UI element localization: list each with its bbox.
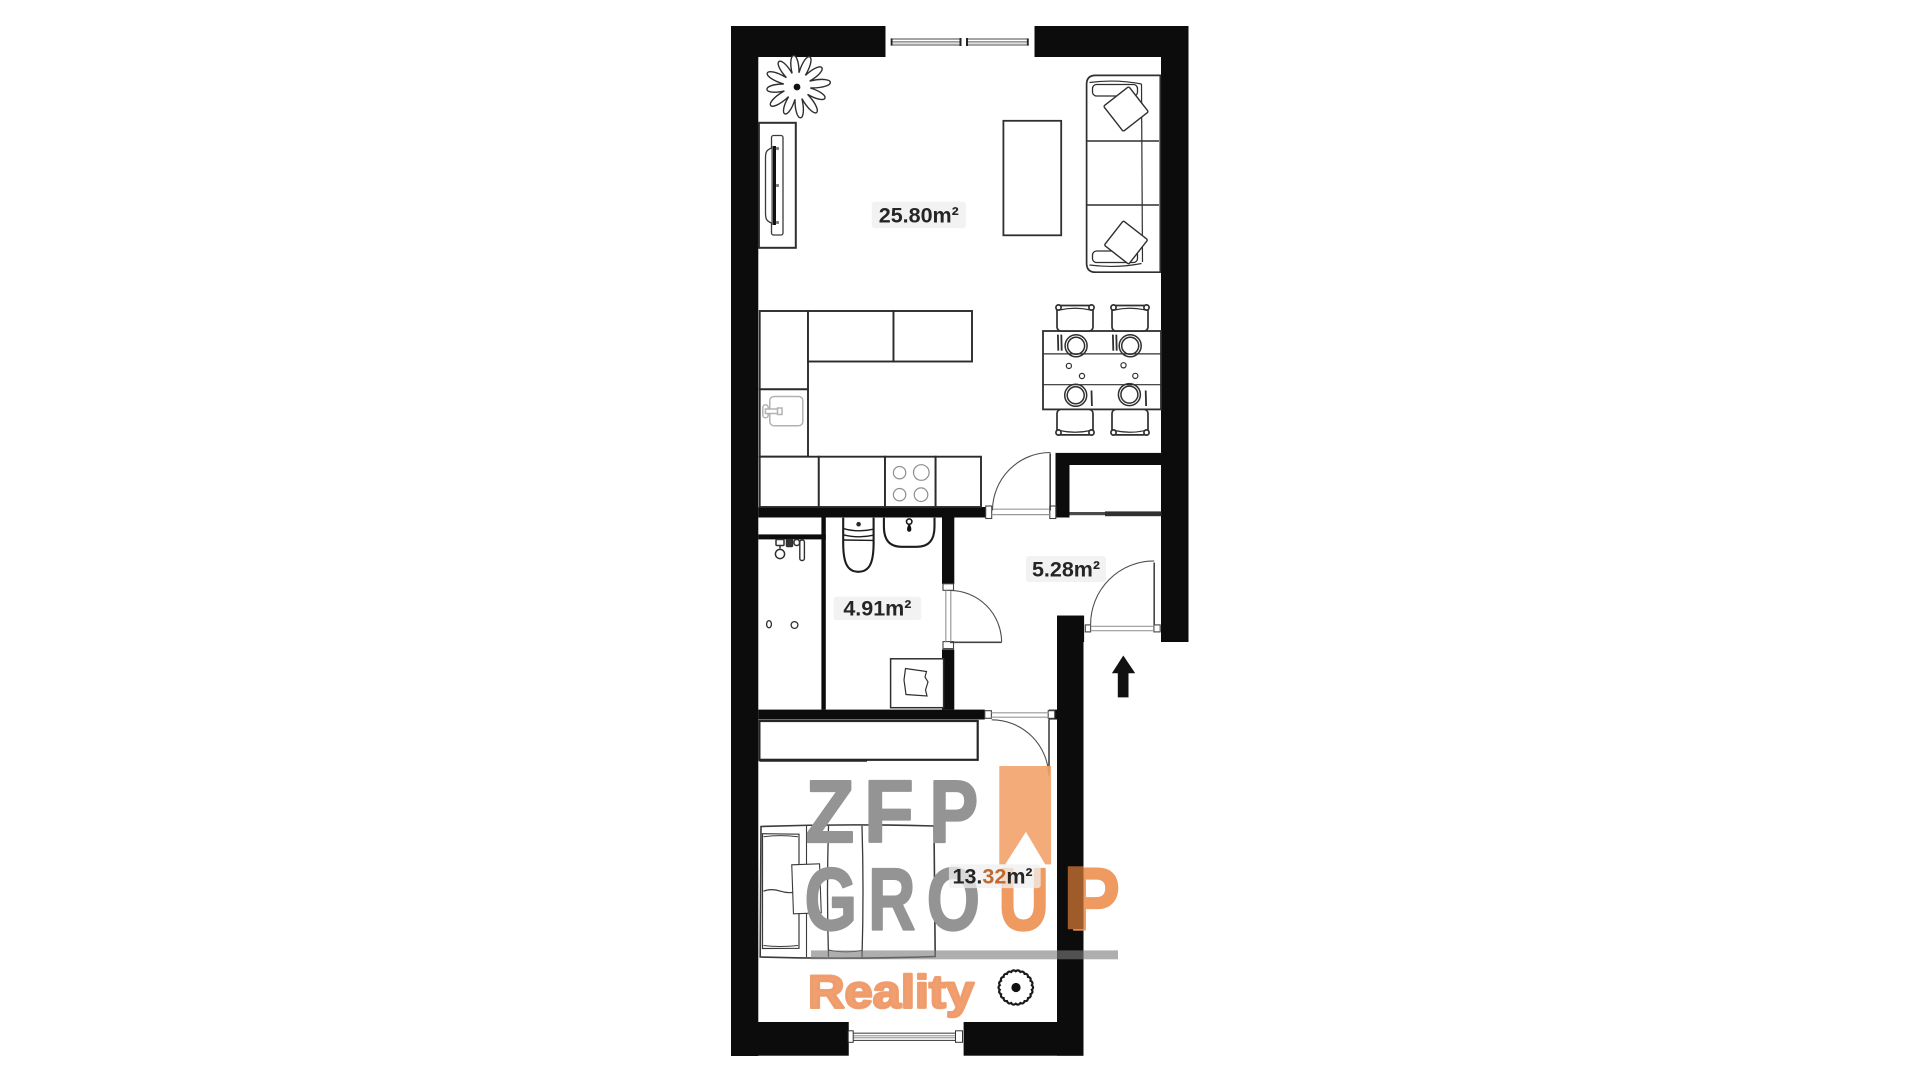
svg-text:F: F: [864, 762, 914, 861]
svg-text:25.80m²: 25.80m²: [879, 203, 959, 227]
svg-text:5.28m²: 5.28m²: [1032, 557, 1100, 581]
svg-text:13.32m²: 13.32m²: [953, 864, 1033, 888]
svg-text:P: P: [929, 762, 978, 861]
svg-text:G: G: [805, 850, 857, 949]
svg-text:Reality: Reality: [808, 966, 974, 1018]
svg-text:R: R: [868, 850, 915, 949]
svg-text:Z: Z: [806, 762, 855, 861]
svg-text:4.91m²: 4.91m²: [843, 597, 911, 621]
